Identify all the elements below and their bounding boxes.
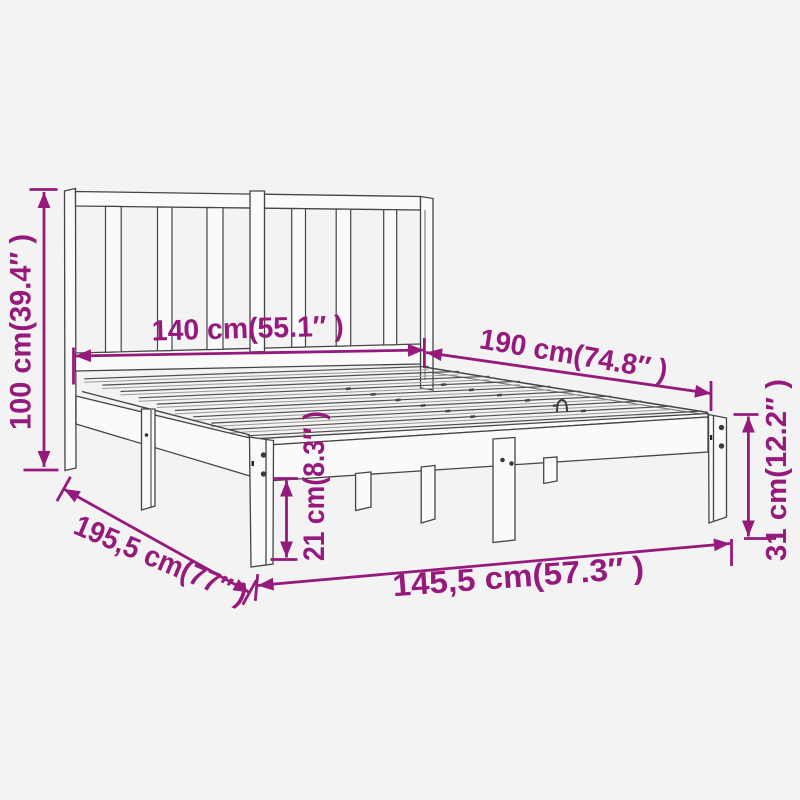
svg-text:21 cm(8.3″ ): 21 cm(8.3″ ) bbox=[298, 411, 331, 561]
svg-text:100 cm(39.4″ ): 100 cm(39.4″ ) bbox=[5, 234, 38, 430]
svg-text:31 cm(12.2″ ): 31 cm(12.2″ ) bbox=[761, 379, 793, 561]
svg-text:140 cm(55.1″ ): 140 cm(55.1″ ) bbox=[151, 310, 344, 347]
